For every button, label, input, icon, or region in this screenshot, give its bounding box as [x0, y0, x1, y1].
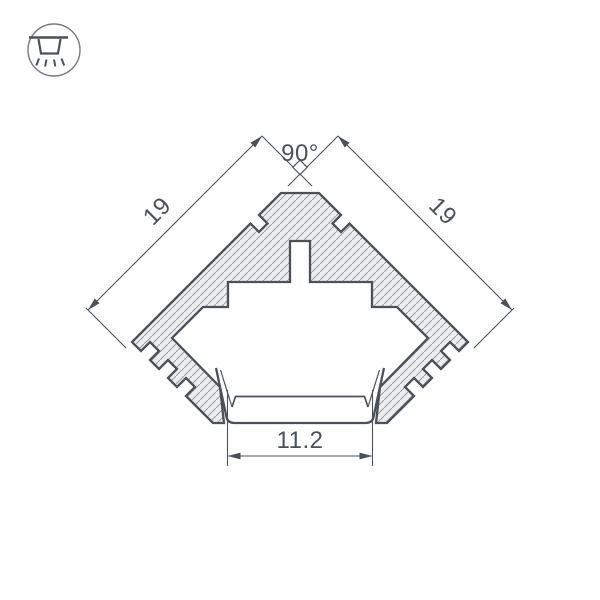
- right-side-dimension-label: 19: [423, 192, 462, 231]
- profile-cross-section-drawing: 90° 19 19 11.2: [0, 0, 600, 600]
- dim-line-right-19: [338, 136, 512, 310]
- diffuser-tray: [216, 368, 384, 423]
- left-side-dimension-label: 19: [138, 192, 177, 231]
- dim-line-left-19: [88, 136, 262, 310]
- bottom-width-dimension-label: 11.2: [277, 427, 324, 454]
- witness-line-right: [474, 308, 514, 348]
- drawing-page: 90° 19 19 11.2: [0, 0, 600, 600]
- angle-dimension-label: 90°: [281, 140, 319, 167]
- diffuser-tray-outline: [216, 368, 384, 423]
- surface-mount-light-icon: [28, 24, 80, 76]
- icon-circle: [28, 24, 80, 76]
- witness-line-left: [86, 308, 126, 348]
